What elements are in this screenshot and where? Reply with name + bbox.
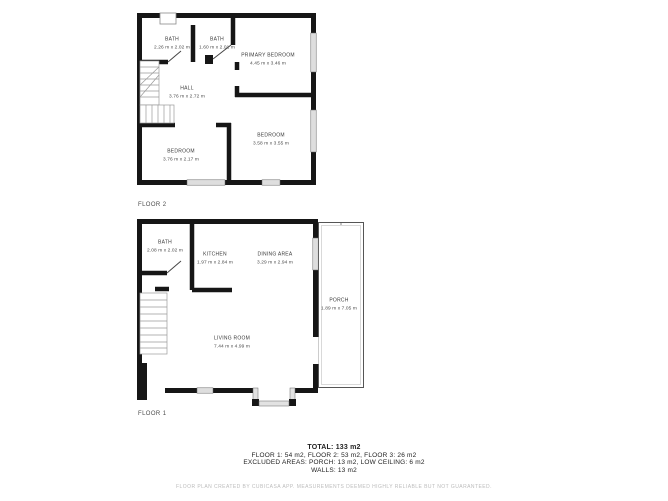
summary-total: TOTAL: 133 m2 bbox=[0, 444, 668, 452]
room-dims: 7.44 m x 4.99 m bbox=[214, 343, 250, 351]
chimney bbox=[160, 13, 176, 24]
room-name: LIVING ROOM bbox=[214, 335, 250, 343]
room-dims: 3.29 m x 2.94 m bbox=[257, 259, 293, 267]
room-name: BATH bbox=[154, 36, 190, 44]
room-name: BEDROOM bbox=[253, 132, 289, 140]
room-label-primary-bedroom: PRIMARY BEDROOM 4.45 m x 3.46 m bbox=[241, 52, 295, 67]
summary-excluded: EXCLUDED AREAS: PORCH: 13 m2, LOW CEILIN… bbox=[0, 459, 668, 467]
floor2-label: FLOOR 2 bbox=[138, 202, 166, 208]
room-dims: 3.76 m x 2.72 m bbox=[169, 93, 205, 101]
room-label-living-room: LIVING ROOM 7.44 m x 4.99 m bbox=[214, 335, 250, 350]
room-dims: 1.60 m x 2.01 m bbox=[199, 44, 235, 52]
floor2-plan: BATH 2.26 m x 2.02 m BATH 1.60 m x 2.01 … bbox=[135, 11, 325, 217]
room-dims: 2.08 m x 2.02 m bbox=[147, 247, 183, 255]
room-label-bath-left: BATH 2.26 m x 2.02 m bbox=[154, 36, 190, 51]
room-name: BATH bbox=[199, 36, 235, 44]
room-label-bedroom-left: BEDROOM 3.76 m x 2.17 m bbox=[163, 148, 199, 163]
porch-door-opening bbox=[312, 337, 318, 364]
room-label-dining-area: DINING AREA 3.29 m x 2.94 m bbox=[257, 251, 293, 266]
room-name: PRIMARY BEDROOM bbox=[241, 52, 295, 60]
room-dims: 1.89 m x 7.05 m bbox=[321, 305, 357, 313]
room-label-hall: HALL 3.76 m x 2.72 m bbox=[169, 85, 205, 100]
room-dims: 2.26 m x 2.02 m bbox=[154, 44, 190, 52]
room-label-bath-mid: BATH 1.60 m x 2.01 m bbox=[199, 36, 235, 51]
floor-plan-page: BATH 2.26 m x 2.02 m BATH 1.60 m x 2.01 … bbox=[0, 0, 668, 501]
room-name: HALL bbox=[169, 85, 205, 93]
room-name: PORCH bbox=[321, 297, 357, 305]
room-label-bath: BATH 2.08 m x 2.02 m bbox=[147, 239, 183, 254]
area-summary: TOTAL: 133 m2 FLOOR 1: 54 m2, FLOOR 2: 5… bbox=[0, 444, 668, 475]
room-name: DINING AREA bbox=[257, 251, 293, 259]
room-label-bedroom-right: BEDROOM 3.58 m x 3.55 m bbox=[253, 132, 289, 147]
room-dims: 3.58 m x 3.55 m bbox=[253, 140, 289, 148]
room-name: KITCHEN bbox=[197, 251, 233, 259]
room-dims: 4.45 m x 3.46 m bbox=[241, 60, 295, 68]
summary-floors: FLOOR 1: 54 m2, FLOOR 2: 53 m2, FLOOR 3:… bbox=[0, 452, 668, 460]
room-dims: 3.76 m x 2.17 m bbox=[163, 156, 199, 164]
room-label-kitchen: KITCHEN 1.97 m x 2.84 m bbox=[197, 251, 233, 266]
room-dims: 1.97 m x 2.84 m bbox=[197, 259, 233, 267]
floor1-label: FLOOR 1 bbox=[138, 411, 166, 417]
summary-walls: WALLS: 13 m2 bbox=[0, 467, 668, 475]
room-label-porch: PORCH 1.89 m x 7.05 m bbox=[321, 297, 357, 312]
room-name: BATH bbox=[147, 239, 183, 247]
room-name: BEDROOM bbox=[163, 148, 199, 156]
floor1-stairs bbox=[140, 293, 167, 354]
floor1-plan: BATH 2.08 m x 2.02 m KITCHEN 1.97 m x 2.… bbox=[135, 217, 375, 425]
footer-disclaimer: FLOOR PLAN CREATED BY CUBICASA APP. MEAS… bbox=[0, 484, 668, 490]
